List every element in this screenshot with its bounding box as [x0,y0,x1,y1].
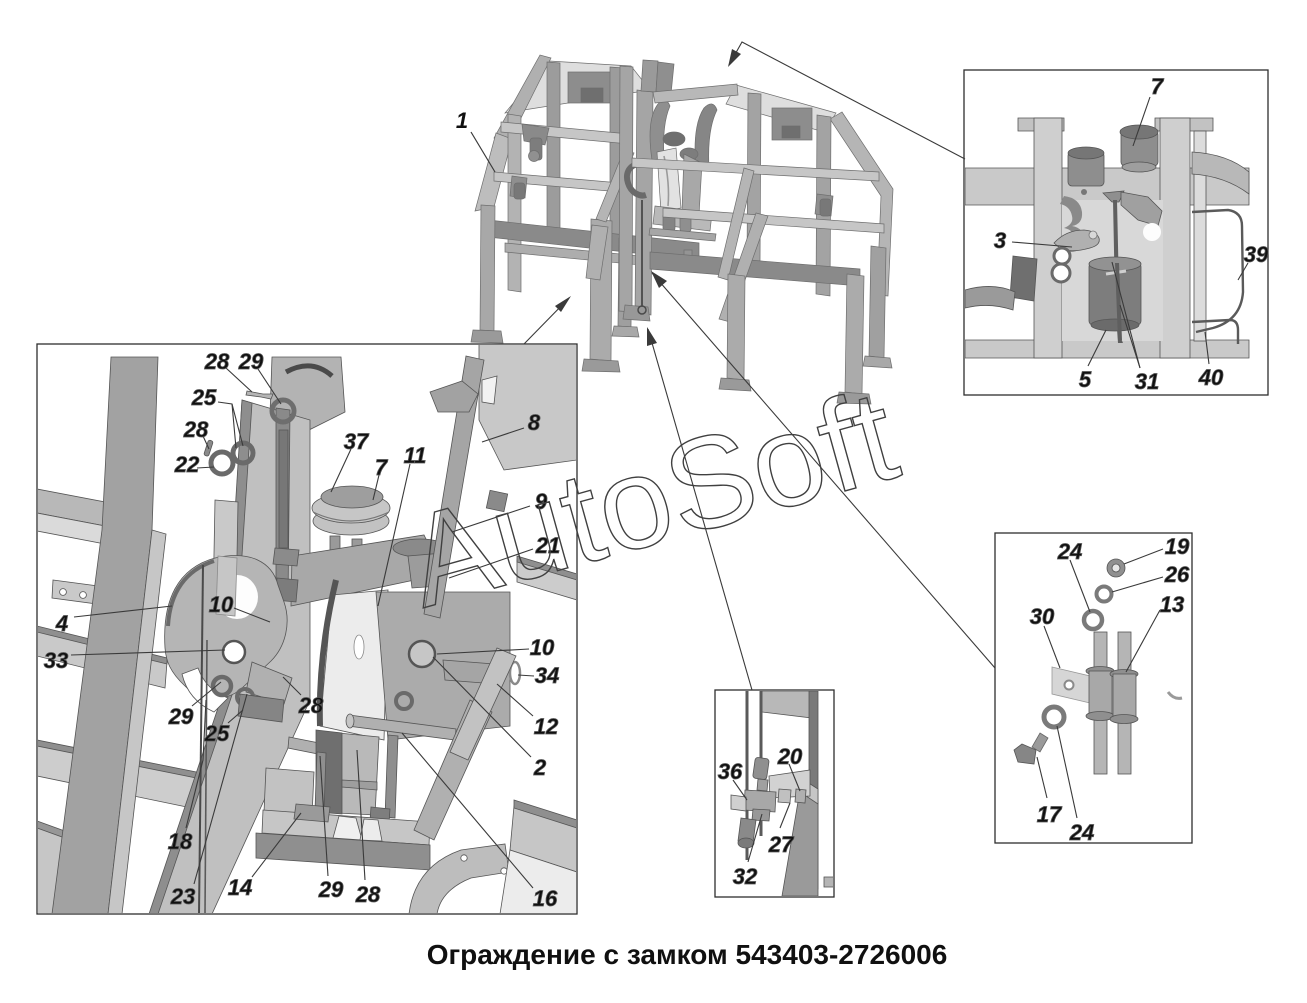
svg-text:27: 27 [768,832,795,857]
svg-text:30: 30 [1030,604,1055,629]
svg-text:28: 28 [183,417,209,442]
svg-text:28: 28 [355,882,381,907]
svg-text:29: 29 [168,704,194,729]
svg-text:26: 26 [1164,562,1190,587]
svg-text:16: 16 [533,886,558,911]
svg-text:19: 19 [1165,534,1190,559]
svg-text:Ограждение с замком 543403-272: Ограждение с замком 543403-2726006 [427,939,948,970]
svg-text:28: 28 [204,349,230,374]
svg-text:28: 28 [298,693,324,718]
svg-text:22: 22 [174,452,200,477]
svg-text:17: 17 [1037,802,1063,827]
svg-text:5: 5 [1079,367,1092,392]
svg-text:23: 23 [170,884,195,909]
svg-text:40: 40 [1198,365,1224,390]
svg-text:10: 10 [209,592,234,617]
svg-text:31: 31 [1135,369,1159,394]
svg-text:12: 12 [534,714,559,739]
svg-text:2: 2 [533,755,547,780]
svg-text:29: 29 [238,349,264,374]
svg-text:24: 24 [1057,539,1082,564]
svg-text:37: 37 [344,429,370,454]
svg-text:34: 34 [535,663,559,688]
svg-text:33: 33 [44,648,68,673]
svg-text:13: 13 [1160,592,1184,617]
svg-text:1: 1 [456,108,468,133]
svg-text:11: 11 [404,443,427,468]
svg-text:36: 36 [718,759,743,784]
svg-text:39: 39 [1244,242,1269,267]
svg-text:25: 25 [204,721,230,746]
svg-text:8: 8 [528,410,541,435]
svg-text:25: 25 [191,385,217,410]
svg-text:24: 24 [1069,820,1094,845]
svg-text:7: 7 [375,455,389,480]
svg-text:29: 29 [318,877,344,902]
svg-text:7: 7 [1151,74,1165,99]
svg-text:32: 32 [733,864,758,889]
svg-text:18: 18 [168,829,193,854]
svg-text:3: 3 [994,228,1006,253]
svg-text:10: 10 [530,635,555,660]
svg-text:14: 14 [228,875,252,900]
svg-text:20: 20 [777,744,803,769]
svg-text:4: 4 [55,611,68,636]
